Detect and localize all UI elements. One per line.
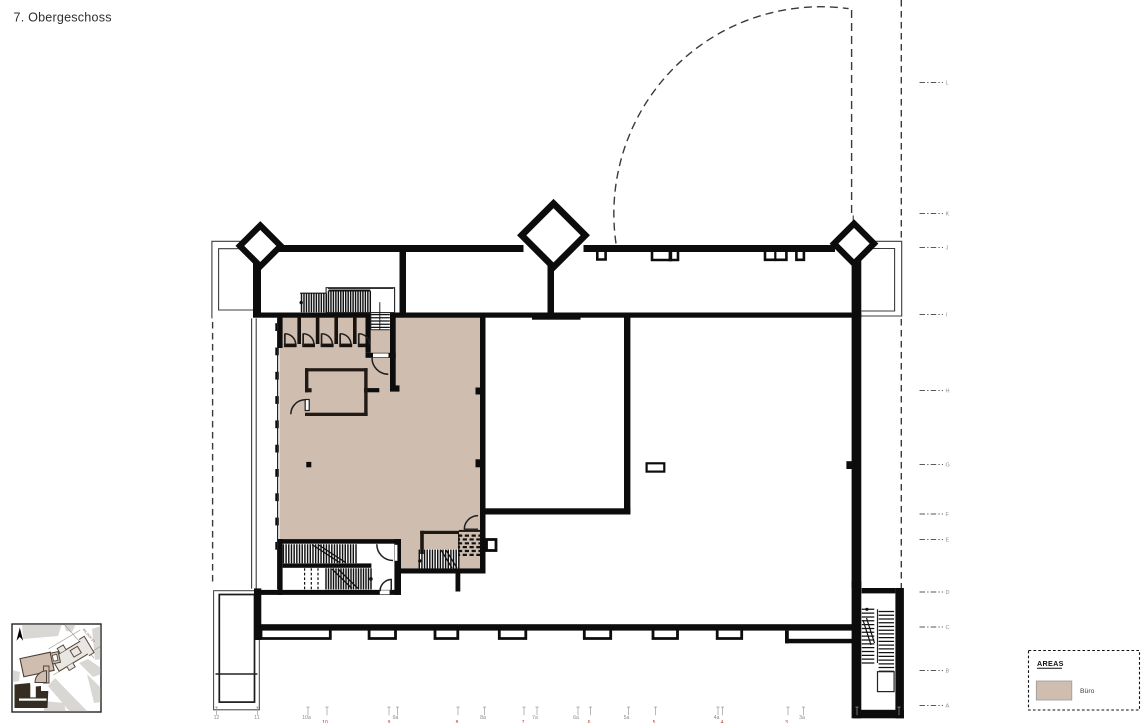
- svg-text:A: A: [946, 704, 950, 710]
- svg-text:8a: 8a: [480, 715, 486, 721]
- svg-text:10a: 10a: [302, 715, 311, 721]
- svg-text:11: 11: [254, 715, 259, 721]
- svg-text:K: K: [946, 212, 950, 218]
- svg-text:G: G: [946, 463, 950, 469]
- svg-text:B: B: [946, 669, 950, 675]
- svg-text:I: I: [946, 313, 948, 319]
- svg-text:C: C: [946, 625, 950, 631]
- svg-text:12: 12: [214, 715, 220, 721]
- svg-text:D: D: [946, 590, 950, 596]
- svg-text:9a: 9a: [393, 715, 399, 721]
- svg-text:L: L: [946, 81, 949, 87]
- svg-text:4a: 4a: [714, 715, 720, 721]
- svg-text:3a: 3a: [799, 715, 805, 721]
- svg-text:AREAS: AREAS: [1037, 659, 1064, 668]
- svg-text:J: J: [946, 246, 949, 252]
- svg-text:F: F: [946, 512, 950, 518]
- svg-text:7. Obergeschoss: 7. Obergeschoss: [14, 11, 112, 25]
- svg-text:6a: 6a: [573, 715, 579, 721]
- svg-text:7a: 7a: [532, 715, 538, 721]
- svg-text:5a: 5a: [624, 715, 630, 721]
- svg-text:E: E: [946, 538, 950, 544]
- svg-text:H: H: [946, 389, 950, 395]
- svg-text:Büro: Büro: [1080, 688, 1095, 695]
